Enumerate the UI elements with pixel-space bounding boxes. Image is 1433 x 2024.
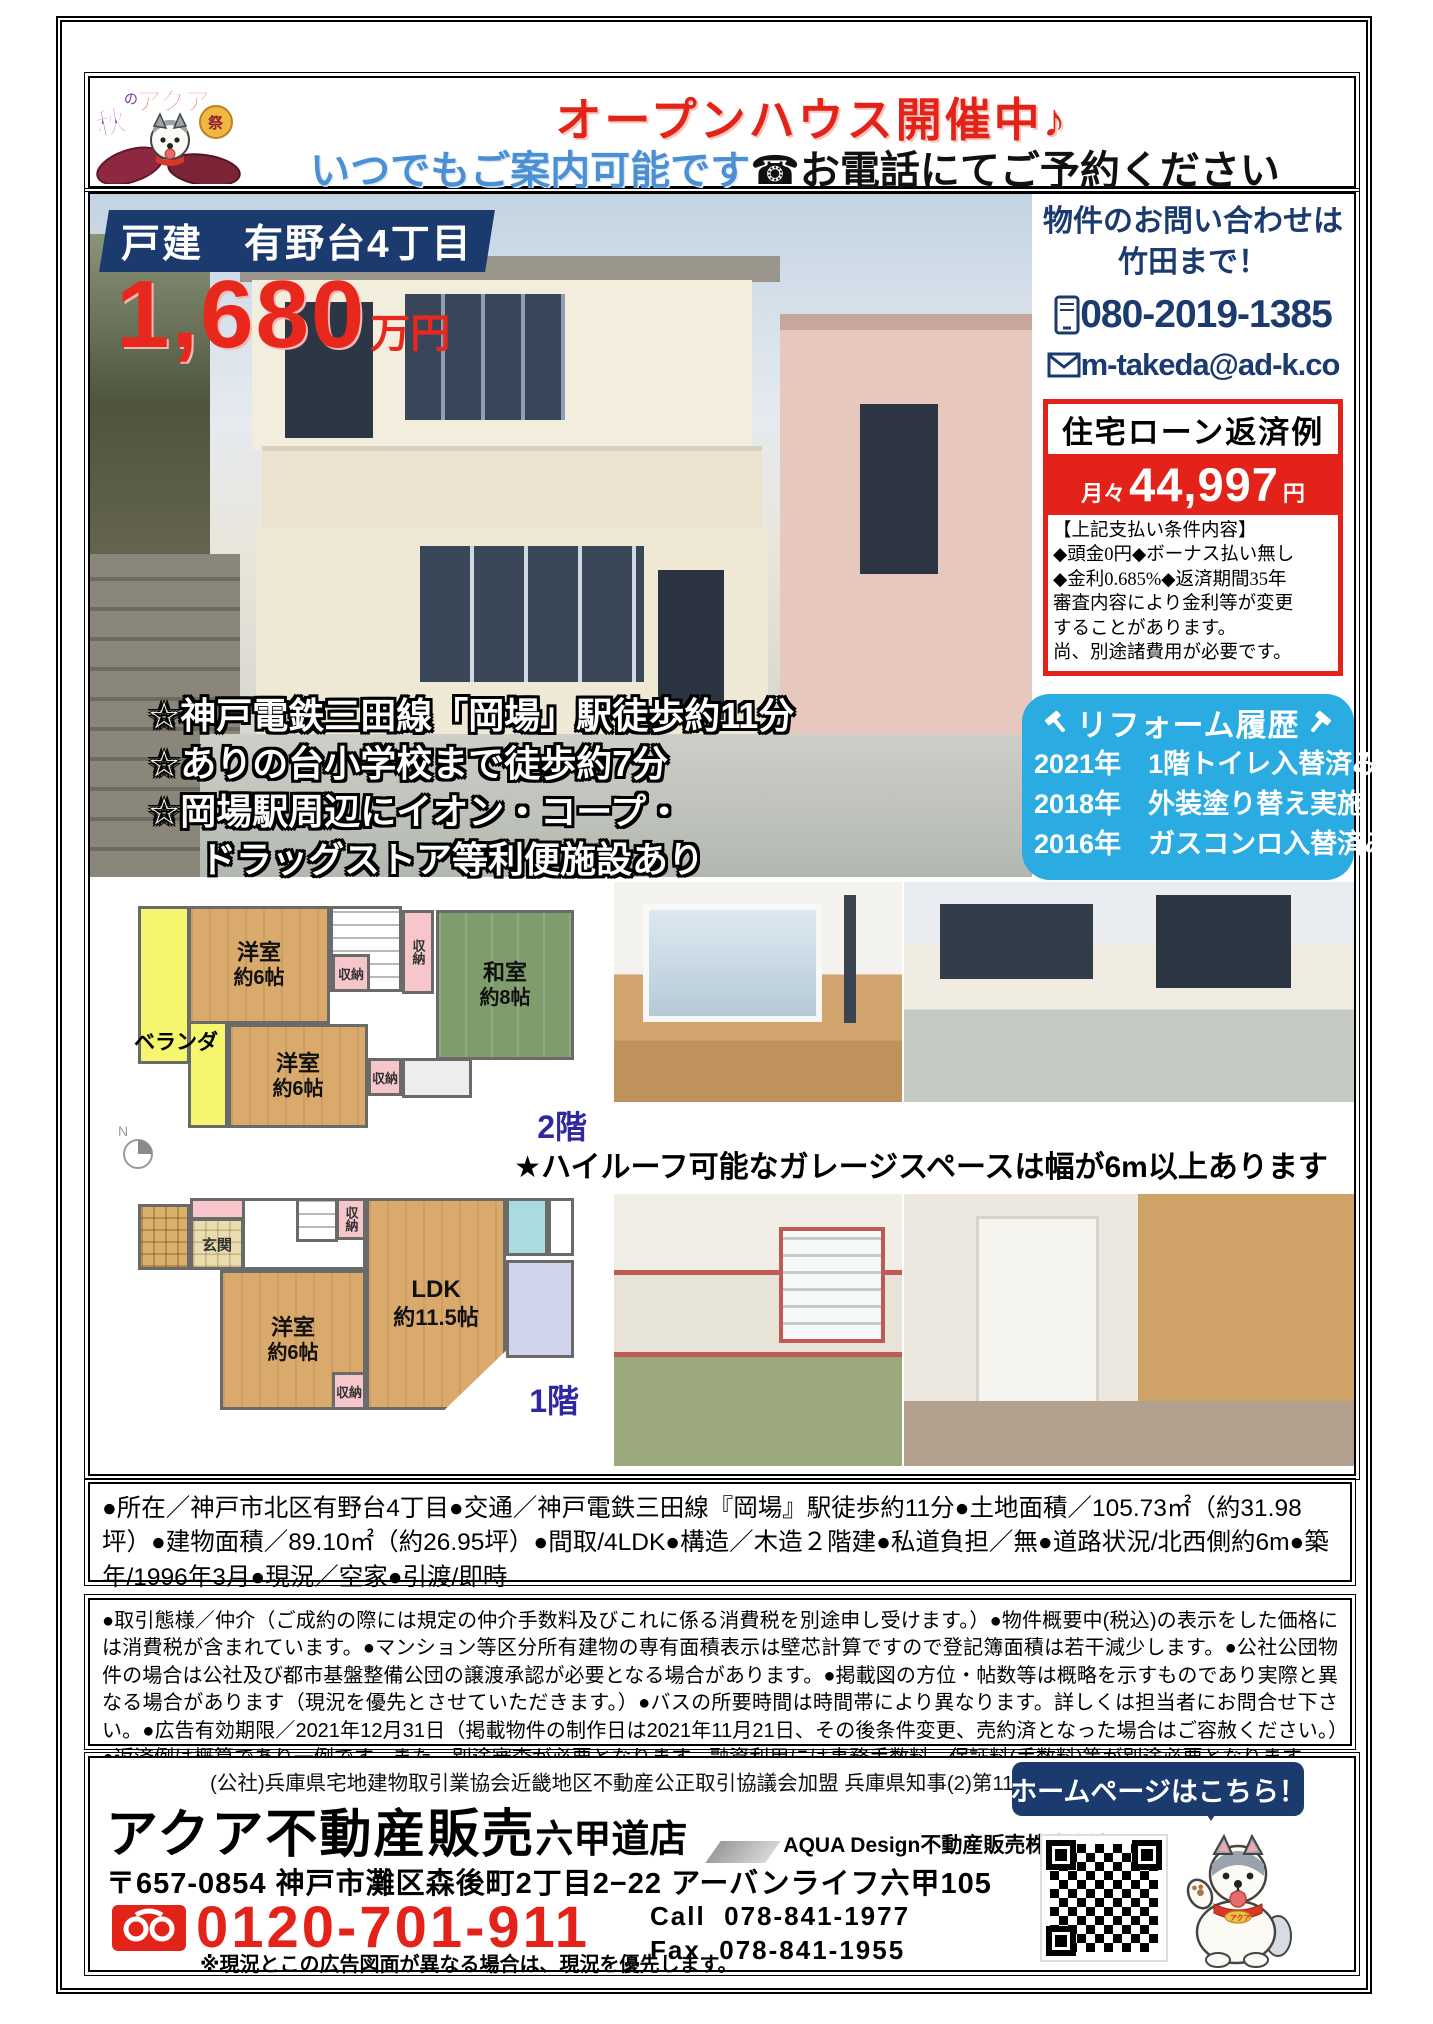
price-unit: 万円 (370, 312, 450, 356)
subtitle-blue: いつでもご案内可能です (310, 149, 750, 193)
closet: 収納 (332, 954, 370, 992)
loan-example-box: 住宅ローン返済例 月々 44,997 円 【上記支払い条件内容】 ◆頭金0円◆ボ… (1043, 399, 1343, 676)
company-branch: 六甲道店 (535, 1808, 687, 1863)
room-western-6-bottom: 洋室 約6帖 (228, 1024, 368, 1128)
washroom-toilet (506, 1260, 574, 1358)
logo-text-fes: 祭 (207, 114, 224, 132)
interior-photo-living (614, 882, 902, 1102)
homepage-qr-code[interactable] (1040, 1834, 1168, 1962)
toilet-2f (402, 1058, 472, 1098)
photo-balcony (262, 446, 762, 535)
flyer-page: 秋 の アクア 祭 オープンハウス開催中♪ いつでもご案内可能です☎お電話にてご… (0, 0, 1433, 2024)
svg-text:アクア: アクア (1230, 1913, 1251, 1922)
qr-finder (1132, 1840, 1162, 1870)
interior-photo-tatami (614, 1194, 902, 1466)
loan-condition-line: 尚、別途諸費用が必要です。 (1053, 641, 1333, 665)
veranda-label: ベランダ (134, 1026, 218, 1056)
photo-window (860, 404, 938, 574)
reform-item: 2016年 ガスコンロ入替済み (1034, 825, 1354, 865)
compass-icon: N (114, 1122, 158, 1172)
footer-box: (公社)兵庫県宅地建物取引業協会近畿地区不動産公正取引協議会加盟 兵庫県知事(2… (88, 1756, 1356, 1972)
svg-text:N: N (118, 1123, 128, 1139)
dog-mascot: アクア (1174, 1832, 1298, 1968)
floor-label-1f: 1階 (529, 1376, 579, 1422)
email-row: m-takeda@ad-k.co (1032, 347, 1354, 383)
company-row: アクア不動産販売 六甲道店 AQUA Design不動産販売株式会社 (106, 1792, 1109, 1867)
garage-note: ★ハイルーフ可能なガレージスペースは幅が6m以上あります (490, 1142, 1352, 1186)
contact-line-1: 物件のお問い合わせは (1032, 202, 1354, 243)
reform-title: リフォーム履歴 (1076, 700, 1299, 745)
subtitle-phone-note: ☎お電話にてご予約ください (750, 149, 1280, 193)
loan-monthly-prefix: 月々 (1081, 476, 1125, 508)
closet (190, 1198, 246, 1220)
room-western-6-top: 洋室 約6帖 (188, 906, 330, 1024)
ldk-room: LDK 約11.5帖 (366, 1198, 506, 1410)
loan-monthly-amount: 44,997 (1129, 457, 1279, 512)
feature-line: ☆ありの台小学校まで徒歩約7分 (148, 740, 794, 788)
interior-photo-garage (904, 882, 1354, 1102)
agent-phone-number[interactable]: 080-2019-1385 (1080, 293, 1332, 337)
qr-finder (1046, 1840, 1076, 1870)
price-amount: 1,680 (116, 261, 366, 368)
reform-items: 2021年 1階トイレ入替済み 2018年 外装塗り替え実施 2016年 ガスコ… (1022, 745, 1354, 865)
stairs (296, 1198, 338, 1242)
loan-condition-line: ◆金利0.685%◆返済期間35年 (1053, 568, 1333, 592)
homepage-bubble: ホームページはこちら！ (1012, 1762, 1304, 1816)
photo-window (420, 546, 644, 682)
phone-row: 080-2019-1385 (1032, 293, 1354, 337)
loan-conditions: 【上記支払い条件内容】 ◆頭金0円◆ボーナス払い無し ◆金利0.685%◆返済期… (1048, 515, 1338, 671)
closet: 収納 (402, 910, 434, 994)
loan-condition-line: 【上記支払い条件内容】 (1053, 519, 1333, 543)
feature-line: ☆神戸電鉄三田線「岡場」駅徒歩約11分 (148, 692, 794, 740)
hammer-icon (1044, 710, 1070, 736)
reform-history-box: リフォーム履歴 2021年 1階トイレ入替済み 2018年 外装塗り替え実施 2… (1022, 694, 1354, 880)
bathtub (548, 1198, 574, 1256)
agent-email[interactable]: m-takeda@ad-k.co (1081, 347, 1340, 383)
footer-note: ※現況とこの広告図面が異なる場合は、現況を優先します。 (200, 1948, 737, 1977)
entrance-hall: 玄関 (190, 1218, 244, 1270)
floorplan-1f: 玄関 収納 LDK 約11.5帖 洋室 約6帖 収納 1階 (100, 1174, 615, 1466)
main-box: 戸建 有野台4丁目 1,680万円 物件のお問い合わせは 竹田まで！ 080-2… (88, 192, 1356, 1476)
logo-illustration: 秋 の アクア 祭 (94, 78, 250, 184)
logo-text-aki: 秋 (94, 104, 129, 143)
bathroom (506, 1198, 548, 1256)
closet: 収納 (368, 1058, 402, 1096)
hammer-icon (1306, 710, 1332, 736)
location-features: ☆神戸電鉄三田線「岡場」駅徒歩約11分 ☆ありの台小学校まで徒歩約7分 ☆岡場駅… (148, 692, 794, 884)
loan-condition-line: 審査内容により金利等が変更 (1053, 592, 1333, 616)
floorplan-2f: ベランダ 洋室 約6帖 収納 収納 和室 約8帖 洋室 約6帖 収納 2階 N (100, 890, 615, 1174)
room-japanese-8: 和室 約8帖 (436, 910, 574, 1060)
company-name: アクア不動産販売 (106, 1792, 535, 1867)
header-subtitle: いつでもご案内可能です☎お電話にてご予約ください (240, 138, 1350, 196)
property-details-box: ●所在／神戸市北区有野台4丁目●交通／神戸電鉄三田線『岡場』駅徒歩約11分●土地… (88, 1482, 1352, 1582)
email-icon (1047, 352, 1081, 378)
closet: 収納 (332, 1372, 366, 1410)
contact-line-2: 竹田まで！ (1032, 243, 1354, 284)
disclaimer-box: ●取引態様／仲介（ご成約の際には規定の仲介手数料及びこれに係る消費税を別途申し受… (88, 1598, 1352, 1746)
tollfree-icon (112, 1903, 186, 1953)
loan-title: 住宅ローン返済例 (1048, 404, 1338, 454)
qr-finder (1046, 1926, 1076, 1956)
call-number[interactable]: Call 078-841-1977 (650, 1900, 910, 1934)
aqua-festival-logo: 秋 の アクア 祭 (94, 78, 250, 184)
interior-photo-hallway (904, 1194, 1354, 1466)
price: 1,680万円 (116, 260, 450, 370)
loan-monthly-payment: 月々 44,997 円 (1048, 454, 1338, 515)
closet: 収納 (336, 1198, 366, 1240)
feature-line: ドラッグストア等利便施設あり (200, 836, 794, 884)
entrance-porch (138, 1204, 190, 1270)
logo-text-aqua: アクア (136, 88, 210, 116)
reform-title-row: リフォーム履歴 (1022, 700, 1354, 745)
loan-condition-line: ◆頭金0円◆ボーナス払い無し (1053, 543, 1333, 567)
feature-line: ☆岡場駅周辺にイオン・コープ・ (148, 788, 794, 836)
reform-item: 2018年 外装塗り替え実施 (1034, 785, 1354, 825)
loan-monthly-unit: 円 (1283, 476, 1305, 508)
reform-item: 2021年 1階トイレ入替済み (1034, 745, 1354, 785)
loan-condition-line: することがあります。 (1053, 617, 1333, 641)
header-box: 秋 の アクア 祭 オープンハウス開催中♪ いつでもご案内可能です☎お電話にてご… (88, 76, 1356, 188)
mobile-phone-icon (1054, 295, 1080, 335)
